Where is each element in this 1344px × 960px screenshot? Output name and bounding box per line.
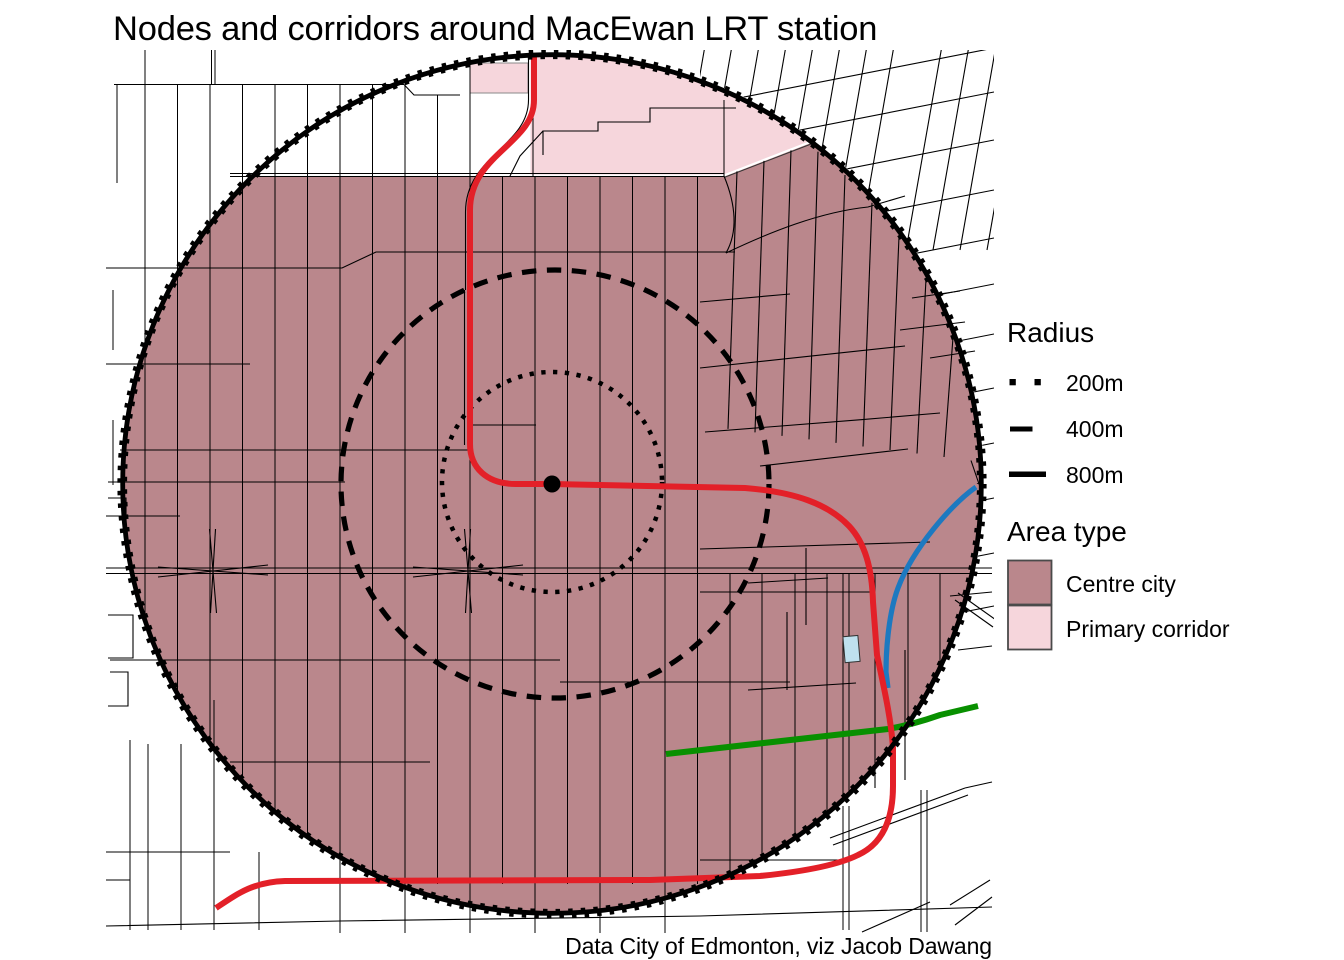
svg-text:Primary corridor: Primary corridor (1066, 616, 1230, 642)
svg-text:200m: 200m (1066, 370, 1124, 396)
svg-text:Radius: Radius (1007, 317, 1094, 348)
svg-text:400m: 400m (1066, 416, 1124, 442)
svg-text:Centre city: Centre city (1066, 571, 1176, 597)
svg-text:800m: 800m (1066, 462, 1124, 488)
svg-text:Data City of Edmonton, viz Jac: Data City of Edmonton, viz Jacob Dawang (565, 933, 992, 959)
svg-text:Nodes and corridors around Mac: Nodes and corridors around MacEwan LRT s… (113, 10, 877, 48)
svg-text:Area type: Area type (1007, 516, 1127, 547)
